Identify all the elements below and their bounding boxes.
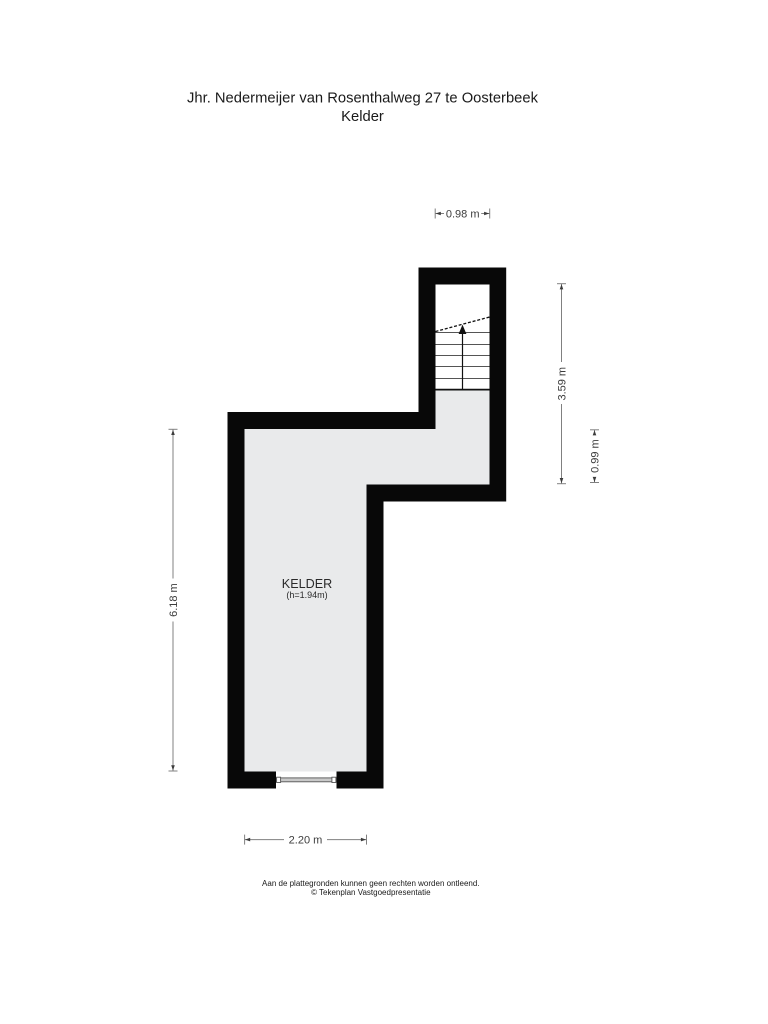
svg-text:KELDER: KELDER bbox=[282, 577, 332, 591]
svg-text:0.99 m: 0.99 m bbox=[590, 439, 602, 473]
svg-text:© Tekenplan Vastgoedpresentati: © Tekenplan Vastgoedpresentatie bbox=[311, 888, 431, 897]
svg-text:3.59 m: 3.59 m bbox=[557, 367, 569, 401]
svg-text:Jhr. Nedermeijer van Rosenthal: Jhr. Nedermeijer van Rosenthalweg 27 te … bbox=[187, 90, 539, 106]
svg-text:6.18 m: 6.18 m bbox=[168, 583, 180, 617]
svg-text:0.98 m: 0.98 m bbox=[446, 208, 480, 220]
svg-text:Kelder: Kelder bbox=[341, 109, 384, 125]
svg-text:2.20 m: 2.20 m bbox=[289, 834, 323, 846]
svg-text:(h=1.94m): (h=1.94m) bbox=[286, 590, 327, 600]
svg-text:Aan de plattegronden kunnen ge: Aan de plattegronden kunnen geen rechten… bbox=[262, 879, 480, 888]
